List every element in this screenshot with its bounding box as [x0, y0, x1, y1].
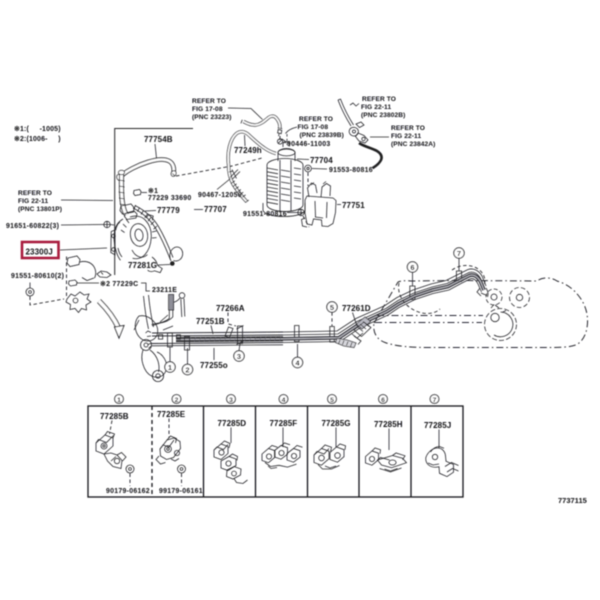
svg-text:77266A: 77266A	[216, 304, 245, 313]
svg-text:90467-12056: 90467-12056	[198, 192, 242, 199]
svg-text:4: 4	[282, 397, 286, 404]
svg-text:REFER TO: REFER TO	[192, 98, 226, 105]
svg-text:6: 6	[410, 263, 414, 272]
svg-text:77751: 77751	[342, 201, 365, 210]
svg-text:(PNC 23802B): (PNC 23802B)	[361, 112, 405, 119]
svg-text:FIG 17-08: FIG 17-08	[192, 106, 223, 113]
svg-text:91551-80610(2): 91551-80610(2)	[11, 273, 64, 280]
svg-text:90446-11003: 90446-11003	[287, 141, 331, 148]
svg-text:23211E: 23211E	[152, 287, 177, 294]
svg-text:77707: 77707	[204, 205, 227, 214]
svg-text:6: 6	[381, 397, 385, 404]
svg-text:77281G: 77281G	[128, 261, 157, 270]
svg-text:2: 2	[185, 366, 189, 375]
svg-text:※2:(1006- ): ※2:(1006- )	[14, 135, 61, 143]
svg-text:77249h: 77249h	[234, 146, 262, 155]
svg-text:77255o: 77255o	[200, 361, 228, 370]
svg-text:REFER TO: REFER TO	[299, 116, 333, 123]
svg-text:99179-06161: 99179-06161	[159, 488, 203, 495]
svg-text:FIG 22-11: FIG 22-11	[361, 104, 391, 111]
svg-text:7: 7	[433, 397, 437, 404]
svg-text:(PNC 23223): (PNC 23223)	[192, 114, 232, 121]
svg-text:(PNC 13801P): (PNC 13801P)	[18, 206, 62, 213]
svg-text:77285E: 77285E	[157, 410, 186, 419]
svg-text:1: 1	[117, 397, 121, 404]
svg-text:77779: 77779	[157, 206, 180, 215]
svg-text:REFER TO: REFER TO	[18, 190, 52, 197]
svg-text:90179-06162: 90179-06162	[106, 488, 150, 495]
svg-text:23300J: 23300J	[26, 248, 53, 257]
svg-text:77285G: 77285G	[322, 419, 351, 428]
svg-text:91553-80816: 91553-80816	[329, 167, 373, 174]
svg-text:1: 1	[168, 363, 172, 372]
svg-text:REFER TO: REFER TO	[391, 125, 425, 132]
svg-text:※1:( -1005): ※1:( -1005)	[14, 125, 61, 133]
svg-text:77285B: 77285B	[100, 412, 129, 421]
svg-text:(PNC 23839B): (PNC 23839B)	[300, 132, 344, 139]
svg-text:FIG 22-11: FIG 22-11	[391, 133, 421, 140]
svg-text:91651-60822(3): 91651-60822(3)	[6, 223, 59, 230]
svg-text:77285D: 77285D	[218, 419, 247, 428]
svg-text:※1: ※1	[148, 187, 158, 195]
svg-text:91551-80816: 91551-80816	[243, 211, 287, 218]
svg-text:77704: 77704	[310, 156, 333, 165]
svg-text:2: 2	[175, 397, 179, 404]
svg-text:REFER TO: REFER TO	[362, 96, 396, 103]
svg-text:7737115: 7737115	[558, 496, 587, 505]
svg-text:77261D: 77261D	[342, 304, 371, 313]
svg-text:FIG 22-11: FIG 22-11	[18, 198, 48, 205]
svg-text:(PNC 23842A): (PNC 23842A)	[391, 141, 435, 148]
svg-text:3: 3	[237, 352, 241, 361]
svg-text:77285F: 77285F	[270, 419, 298, 428]
svg-text:77285J: 77285J	[424, 421, 451, 430]
svg-text:※2 77229C: ※2 77229C	[100, 280, 138, 288]
svg-text:77754B: 77754B	[144, 135, 173, 144]
svg-text:3: 3	[229, 397, 233, 404]
svg-text:5: 5	[330, 303, 334, 312]
svg-text:FIG 17-08: FIG 17-08	[298, 124, 329, 131]
svg-text:5: 5	[330, 397, 334, 404]
svg-text:77251B: 77251B	[196, 317, 225, 326]
svg-text:77229 33690: 77229 33690	[148, 195, 192, 202]
svg-text:77285H: 77285H	[374, 420, 403, 429]
svg-text:7: 7	[457, 249, 461, 258]
